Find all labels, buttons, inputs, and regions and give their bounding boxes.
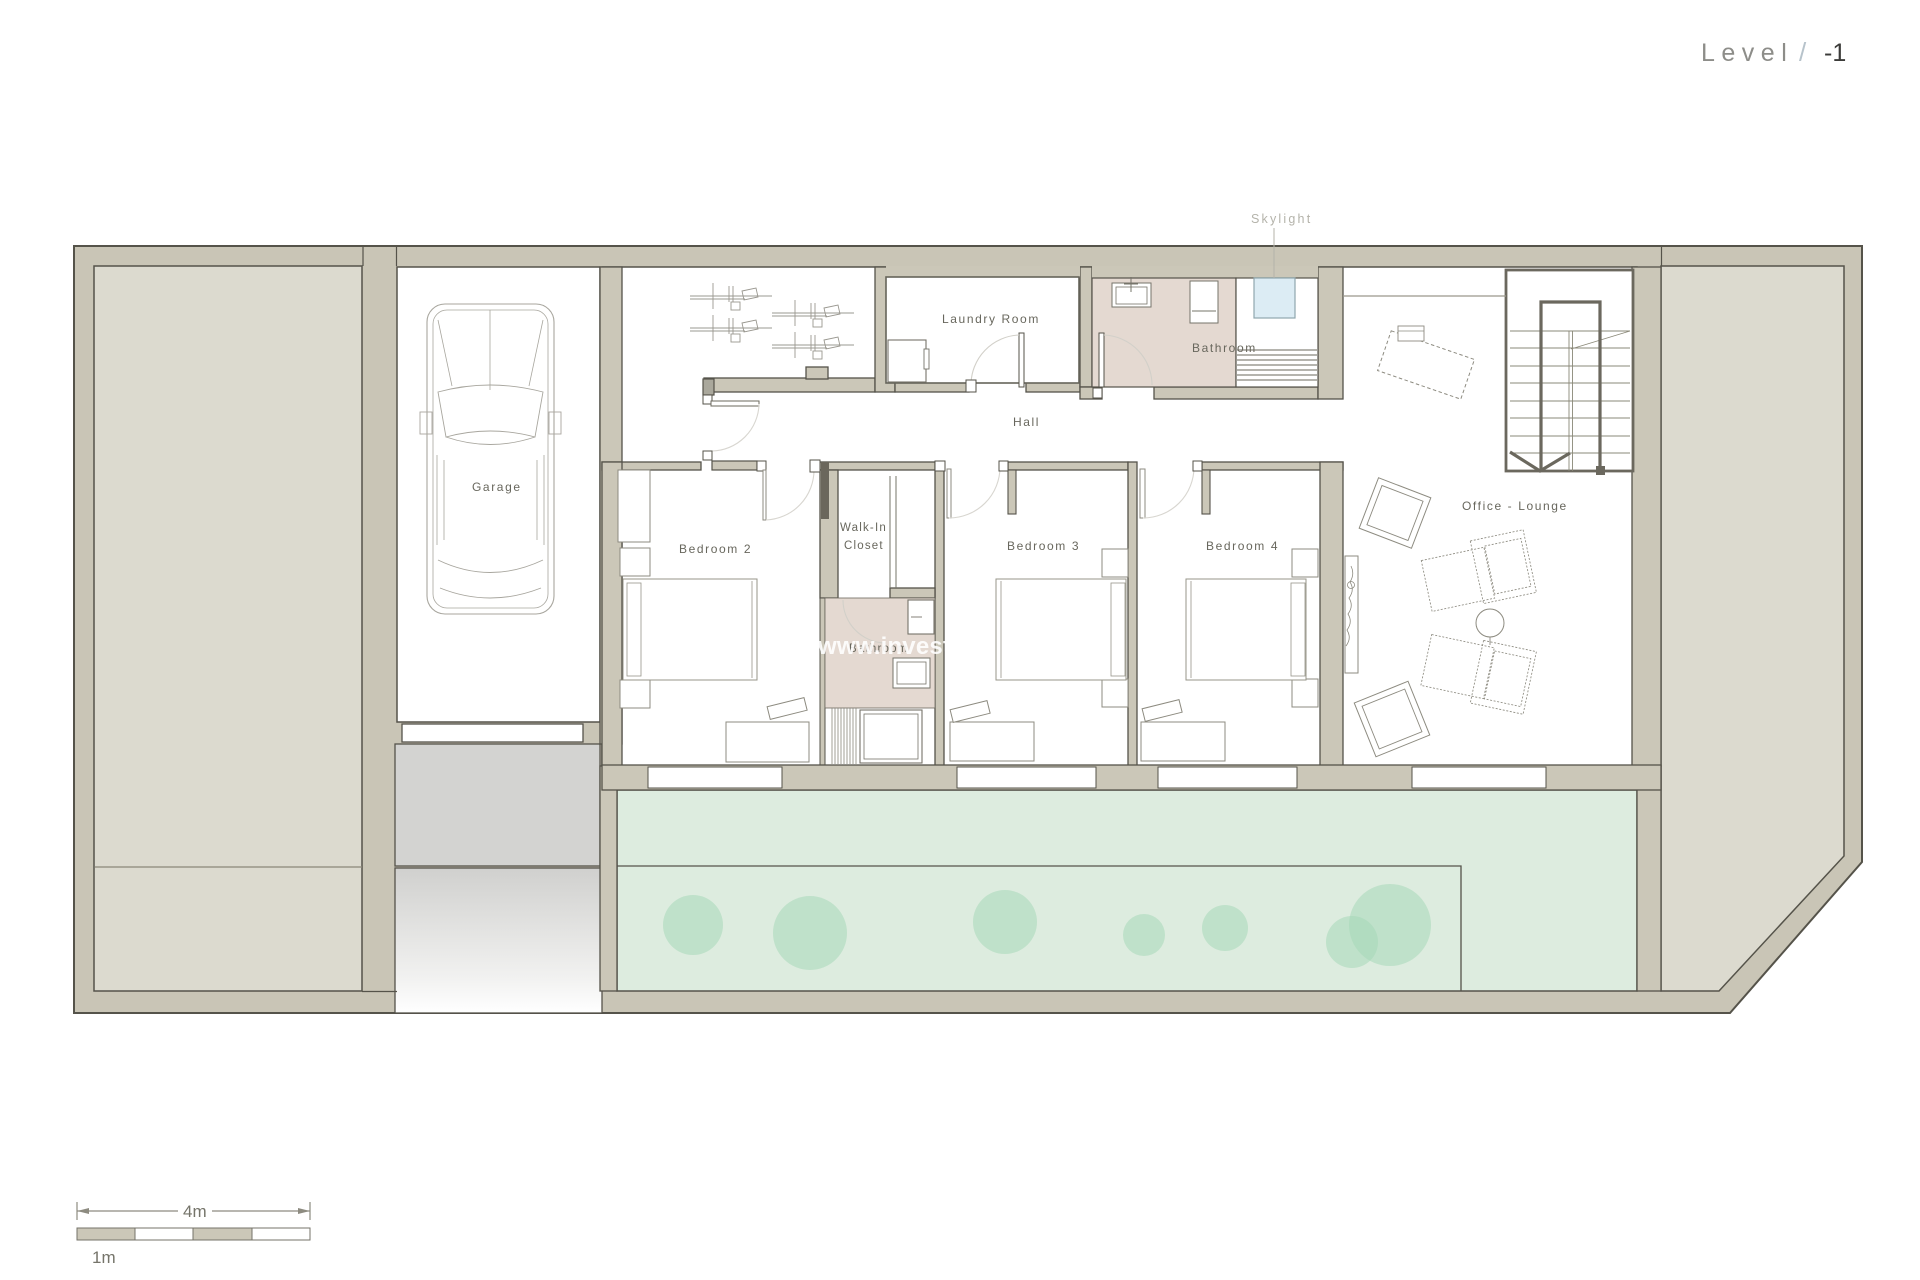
svg-text:Skylight: Skylight bbox=[1251, 212, 1312, 226]
svg-text:4m: 4m bbox=[183, 1202, 207, 1221]
svg-text:Walk-In: Walk-In bbox=[840, 522, 887, 534]
svg-text:1m: 1m bbox=[92, 1248, 116, 1267]
svg-text:Bathroom: Bathroom bbox=[1192, 341, 1257, 355]
svg-text:www.invest: www.invest bbox=[817, 633, 951, 660]
svg-text:Bedroom 4: Bedroom 4 bbox=[1206, 539, 1279, 553]
svg-text:Closet: Closet bbox=[844, 540, 884, 552]
svg-text:Office - Lounge: Office - Lounge bbox=[1462, 499, 1568, 513]
svg-text:Laundry Room: Laundry Room bbox=[942, 312, 1040, 326]
svg-text:Level: Level bbox=[1701, 39, 1793, 67]
svg-text:Bedroom 3: Bedroom 3 bbox=[1007, 539, 1080, 553]
svg-text:Bedroom 2: Bedroom 2 bbox=[679, 542, 752, 556]
svg-text:Hall: Hall bbox=[1013, 415, 1040, 429]
svg-text:-1: -1 bbox=[1824, 39, 1846, 67]
svg-text:Garage: Garage bbox=[472, 480, 522, 494]
svg-text:/: / bbox=[1799, 37, 1807, 67]
